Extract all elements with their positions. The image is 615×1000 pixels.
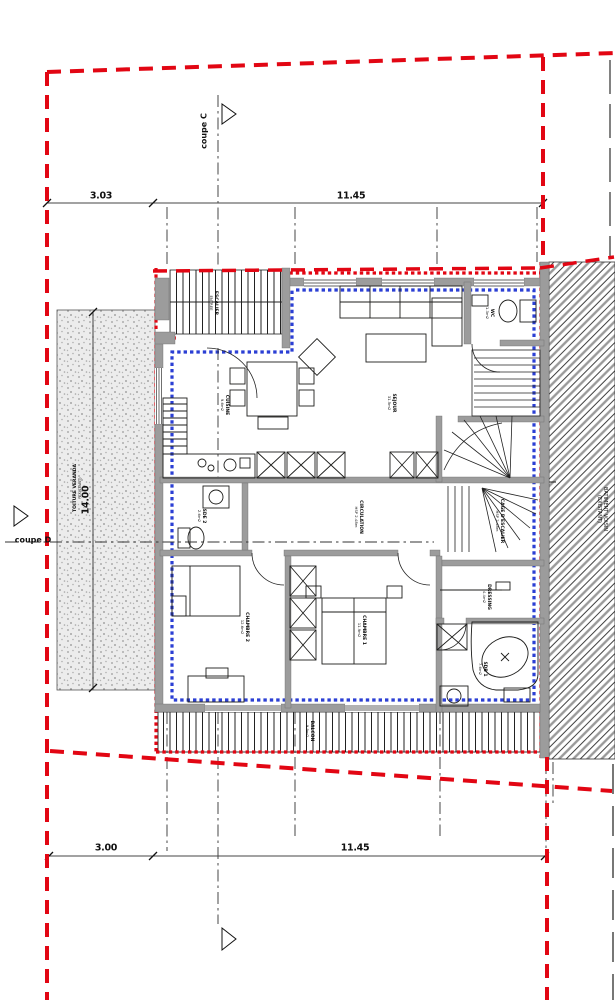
coupe-c-triangle-top: [222, 104, 236, 124]
coupe-d-triangle: [14, 506, 28, 526]
dim-top-right: 11.45: [337, 192, 366, 203]
room-label-cuisine: CUISINE9.6m2: [219, 395, 229, 415]
floor-plan-page: 3.03 11.45 3.00 11.45 14.00 coupe C coup…: [0, 0, 615, 1000]
room-label-chambre2: CHAMBRE 212.6m2: [239, 612, 249, 642]
neighbor-building-label: BATIMENT VOISIN(EXISTANT): [595, 487, 607, 531]
room-label-chambre1: CHAMBRE 111.9m2: [356, 615, 366, 645]
room-label-sejour: SEJOUR31.5m2: [386, 394, 396, 413]
room-label-sdb: SDB 17.6m2: [477, 661, 487, 676]
veranda-roof-area: [57, 310, 155, 690]
red-dotted-outline: [156, 262, 541, 758]
dim-bottom-right: 11.45: [341, 844, 370, 855]
entry-stair-treads: [170, 270, 282, 334]
coupe-c-triangle-bottom: [222, 928, 236, 950]
balcony-deck: [158, 712, 540, 752]
room-label-circulation: CIRCULATIONHSP 2.48m: [353, 500, 363, 534]
coupe-c-label: coupe C: [199, 113, 208, 149]
coupe-d-label: coupe D: [15, 535, 52, 544]
room-label-dressing: DRESSING4.4m2: [481, 584, 491, 610]
room-label-sde: SDE 22.6m2: [196, 509, 206, 524]
interior-stairs: [444, 350, 540, 552]
walls: [155, 262, 549, 758]
room-label-wc: WC1.3m2: [484, 307, 494, 319]
dim-left-vertical: 14.00: [82, 486, 93, 515]
dim-top-left: 3.03: [90, 192, 112, 203]
door-arcs: [207, 344, 500, 650]
veranda-roof-label: TOITURE VERANDA(EXISTANT): [73, 464, 83, 512]
dim-bottom-left: 3.00: [95, 844, 117, 855]
room-label-entry-stair: ESCALIERENTREE: [208, 291, 218, 315]
room-label-stair-hall: CAGE D'ESCALIERHSP 2.48m: [494, 499, 504, 543]
room-label-balcon: BALCON9.9m2: [304, 721, 314, 742]
